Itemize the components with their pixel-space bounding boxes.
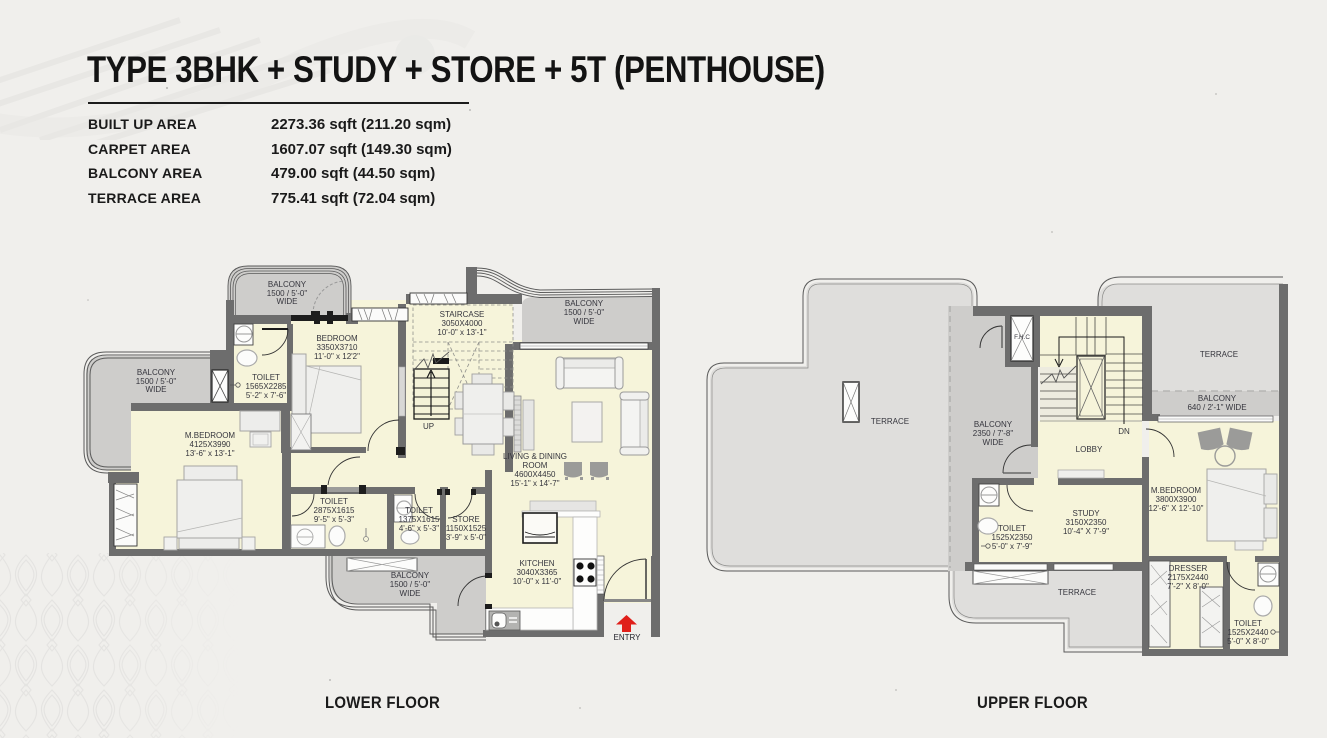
svg-text:10'-0" x 13'-1": 10'-0" x 13'-1" [437,328,486,337]
svg-text:11'-0" x 12'2": 11'-0" x 12'2" [314,352,360,361]
svg-text:4600X4450: 4600X4450 [515,470,556,479]
svg-text:BALCONY: BALCONY [1198,394,1237,403]
svg-text:M.BEDROOM: M.BEDROOM [1151,486,1202,495]
svg-text:1500 / 5'-0": 1500 / 5'-0" [390,580,431,589]
svg-text:BALCONY: BALCONY [974,420,1013,429]
svg-text:15'-1" x 14'-7": 15'-1" x 14'-7" [510,479,559,488]
svg-text:1500 / 5'-0": 1500 / 5'-0" [564,308,605,317]
svg-text:F.H.C: F.H.C [1014,334,1030,341]
svg-text:2350 / 7'-8": 2350 / 7'-8" [973,429,1014,438]
svg-text:3040X3365: 3040X3365 [517,568,558,577]
svg-text:TOILET: TOILET [320,497,348,506]
svg-text:4125X3990: 4125X3990 [190,440,231,449]
svg-text:WIDE: WIDE [400,589,421,598]
svg-text:M.BEDROOM: M.BEDROOM [185,431,236,440]
svg-text:STUDY: STUDY [1072,509,1100,518]
svg-text:TERRACE: TERRACE [871,417,909,426]
svg-text:BALCONY: BALCONY [391,571,430,580]
svg-text:10'-0" x 11'-0": 10'-0" x 11'-0" [513,577,562,586]
svg-text:12'-6" X 12'-10": 12'-6" X 12'-10" [1149,504,1204,513]
svg-text:10'-4" X 7'-9": 10'-4" X 7'-9" [1063,527,1109,536]
svg-text:2875X1615: 2875X1615 [314,506,355,515]
svg-text:3350X3710: 3350X3710 [317,343,358,352]
svg-text:DN: DN [1118,427,1130,436]
svg-text:5'-0" x 7'-9": 5'-0" x 7'-9" [992,542,1032,551]
svg-text:5'-0" X 8'-0": 5'-0" X 8'-0" [1227,637,1269,646]
svg-text:3050X4000: 3050X4000 [442,319,483,328]
svg-text:LOBBY: LOBBY [1076,445,1103,454]
svg-text:TERRACE: TERRACE [1200,350,1238,359]
svg-text:STORE: STORE [452,515,479,524]
svg-text:ROOM: ROOM [523,461,548,470]
svg-text:640 / 2'-1" WIDE: 640 / 2'-1" WIDE [1187,403,1246,412]
svg-text:1525X2440: 1525X2440 [1228,628,1269,637]
svg-text:DRESSER: DRESSER [1169,564,1208,573]
svg-text:TOILET: TOILET [998,524,1026,533]
svg-text:1375X1615: 1375X1615 [399,515,440,524]
svg-text:KITCHEN: KITCHEN [519,559,554,568]
svg-text:9'-5" x 5'-3": 9'-5" x 5'-3" [314,515,354,524]
svg-text:BALCONY: BALCONY [137,368,176,377]
svg-text:BALCONY: BALCONY [268,280,307,289]
svg-text:STAIRCASE: STAIRCASE [440,310,485,319]
svg-text:UP: UP [423,422,434,431]
svg-text:7'-2" X 8'-0": 7'-2" X 8'-0" [1167,582,1209,591]
svg-text:WIDE: WIDE [277,297,298,306]
svg-text:1565X2285: 1565X2285 [246,382,287,391]
svg-text:ENTRY: ENTRY [614,633,642,642]
svg-text:WIDE: WIDE [574,317,595,326]
svg-text:TERRACE: TERRACE [1058,588,1096,597]
svg-text:3150X2350: 3150X2350 [1066,518,1107,527]
svg-text:2175X2440: 2175X2440 [1168,573,1209,582]
svg-text:1150X1525: 1150X1525 [446,524,487,533]
svg-text:3800X3900: 3800X3900 [1156,495,1197,504]
svg-text:13'-6" x 13'-1": 13'-6" x 13'-1" [185,449,234,458]
svg-text:LIVING & DINING: LIVING & DINING [503,452,567,461]
svg-text:4'-6" x 5'-3": 4'-6" x 5'-3" [399,524,439,533]
svg-text:WIDE: WIDE [983,438,1004,447]
svg-text:3'-9" x 5'-0": 3'-9" x 5'-0" [446,533,486,542]
svg-text:WIDE: WIDE [146,385,167,394]
svg-text:1525X2350: 1525X2350 [992,533,1033,542]
svg-text:BALCONY: BALCONY [565,299,604,308]
svg-text:TOILET: TOILET [405,506,433,515]
svg-text:TOILET: TOILET [1234,619,1262,628]
svg-text:BEDROOM: BEDROOM [316,334,358,343]
svg-text:TOILET: TOILET [252,373,280,382]
svg-text:5'-2" x 7'-6": 5'-2" x 7'-6" [246,391,286,400]
